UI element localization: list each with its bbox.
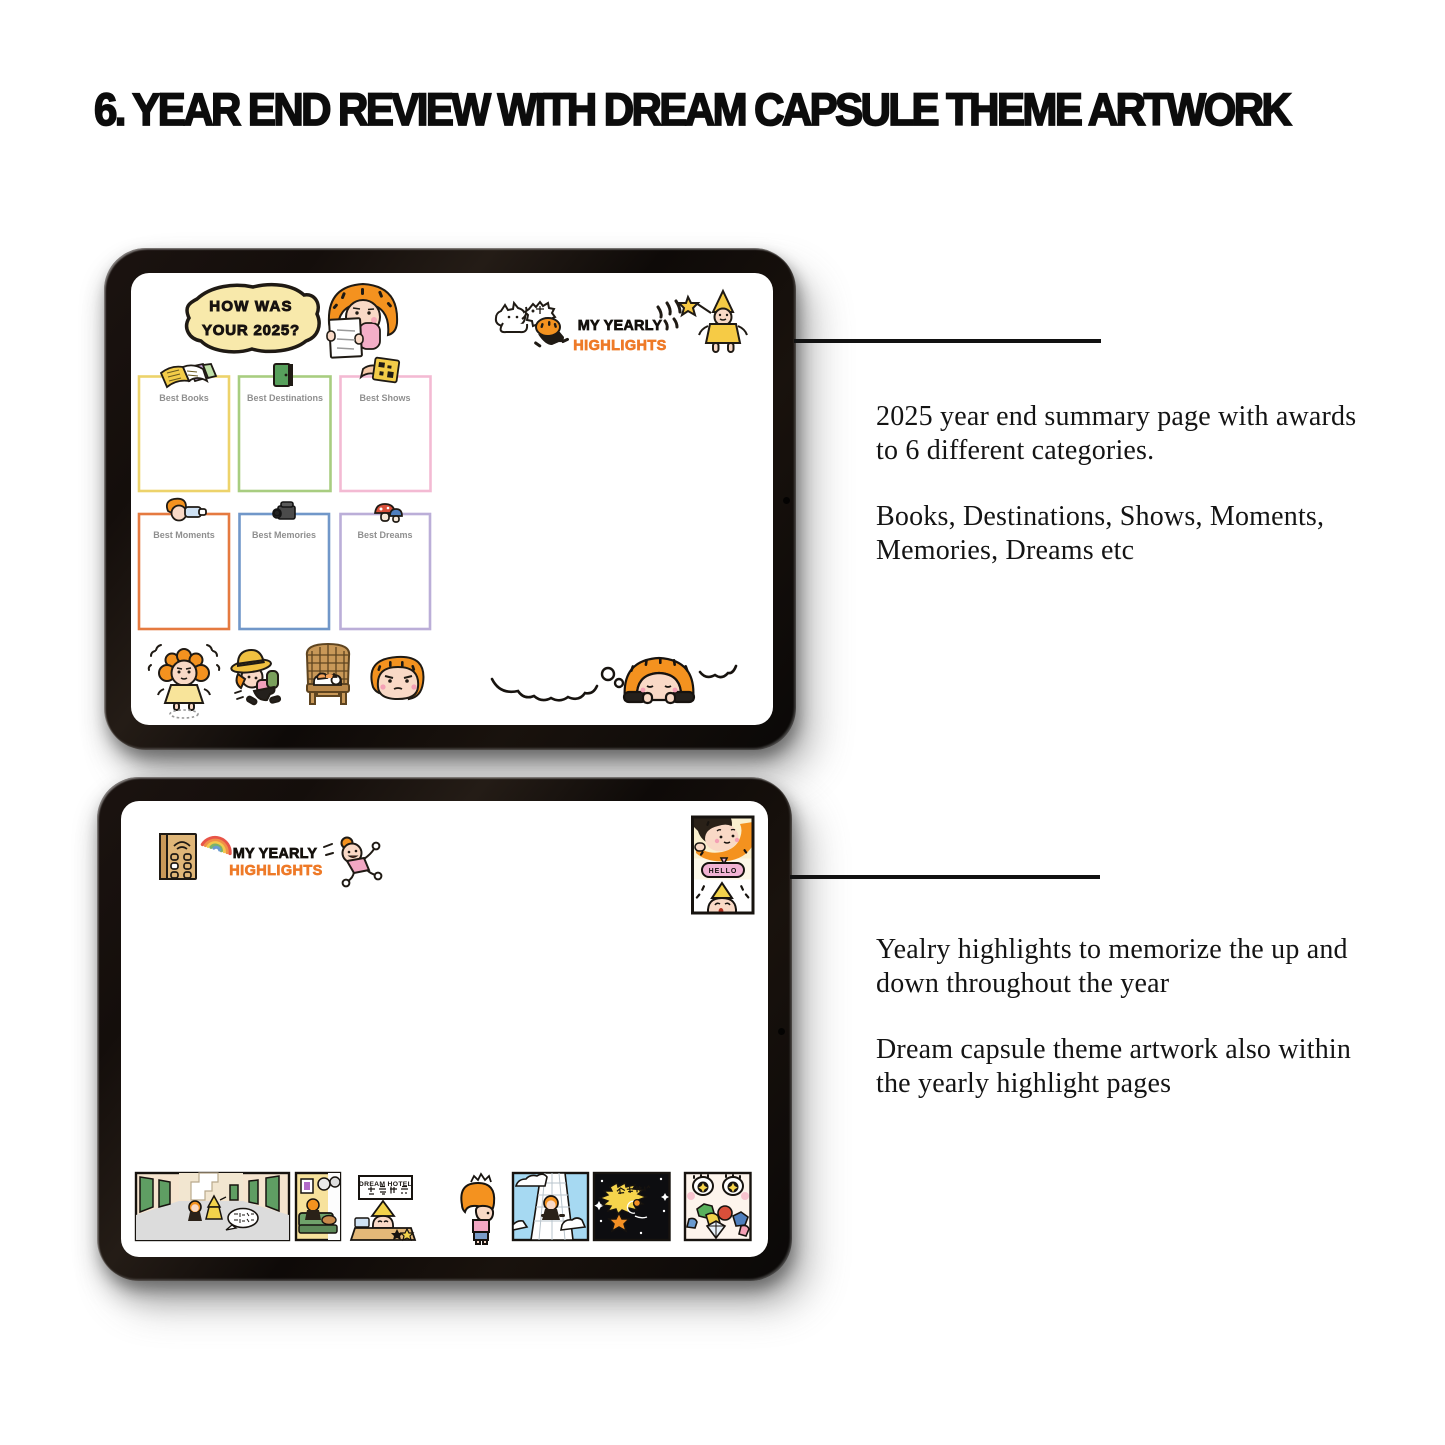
svg-text:Best Shows: Best Shows (359, 393, 410, 403)
svg-text:HOW WAS: HOW WAS (209, 298, 292, 315)
svg-text:Best Moments: Best Moments (153, 530, 215, 540)
svg-text:HELLO: HELLO (709, 868, 738, 875)
svg-text:Best Books: Best Books (159, 393, 209, 403)
svg-text:MY YEARLY: MY YEARLY (233, 846, 318, 862)
svg-text:MY YEARLY: MY YEARLY (578, 318, 663, 334)
svg-text:Best Destinations: Best Destinations (247, 393, 323, 403)
svg-text:Best Dreams: Best Dreams (357, 530, 412, 540)
svg-text:HIGHLIGHTS: HIGHLIGHTS (229, 863, 322, 879)
svg-text:YOUR 2025?: YOUR 2025? (202, 322, 300, 339)
svg-text:HIGHLIGHTS: HIGHLIGHTS (573, 338, 666, 354)
svg-text:Best Memories: Best Memories (252, 530, 316, 540)
